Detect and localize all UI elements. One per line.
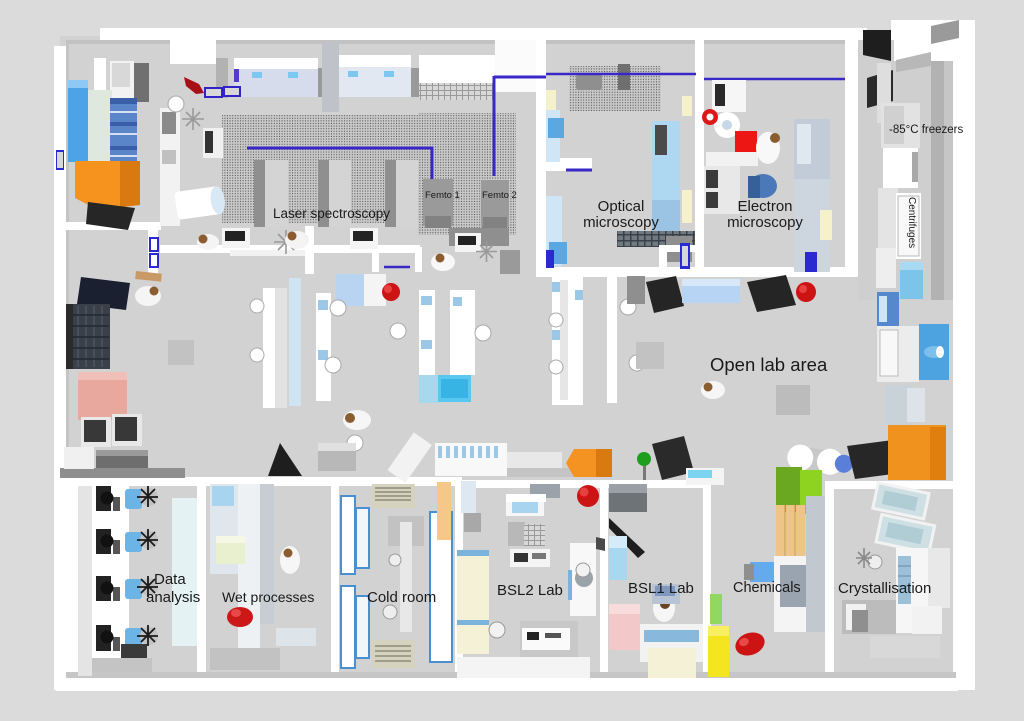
svg-text:analysis: analysis bbox=[146, 589, 200, 606]
svg-text:Centrifuges: Centrifuges bbox=[906, 197, 917, 248]
svg-text:Femto 1: Femto 1 bbox=[425, 190, 460, 201]
svg-text:BSL1 Lab: BSL1 Lab bbox=[628, 580, 694, 597]
svg-text:Data: Data bbox=[154, 571, 186, 588]
svg-text:BSL2 Lab: BSL2 Lab bbox=[497, 582, 563, 599]
svg-text:Open lab area: Open lab area bbox=[710, 354, 828, 375]
svg-text:-85°C freezers: -85°C freezers bbox=[889, 124, 964, 136]
svg-text:microscopy: microscopy bbox=[583, 214, 659, 231]
svg-text:Chemicals: Chemicals bbox=[733, 580, 801, 596]
svg-text:Cold room: Cold room bbox=[367, 589, 436, 606]
svg-text:microscopy: microscopy bbox=[727, 214, 803, 231]
svg-text:Wet processes: Wet processes bbox=[222, 589, 314, 605]
svg-text:Femto 2: Femto 2 bbox=[482, 190, 517, 201]
svg-text:Electron: Electron bbox=[737, 198, 792, 215]
svg-text:Crystallisation: Crystallisation bbox=[838, 580, 931, 597]
svg-text:Laser spectroscopy: Laser spectroscopy bbox=[273, 206, 390, 221]
svg-text:Optical: Optical bbox=[598, 198, 645, 215]
